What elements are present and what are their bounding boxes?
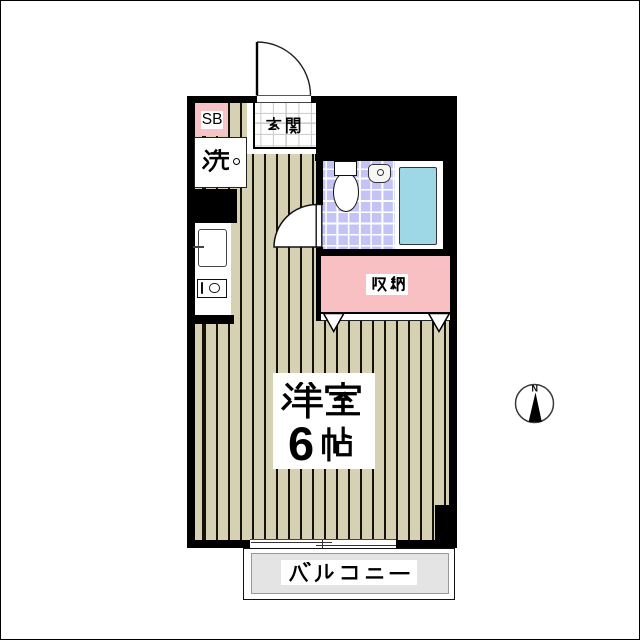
svg-text:N: N <box>532 384 539 394</box>
